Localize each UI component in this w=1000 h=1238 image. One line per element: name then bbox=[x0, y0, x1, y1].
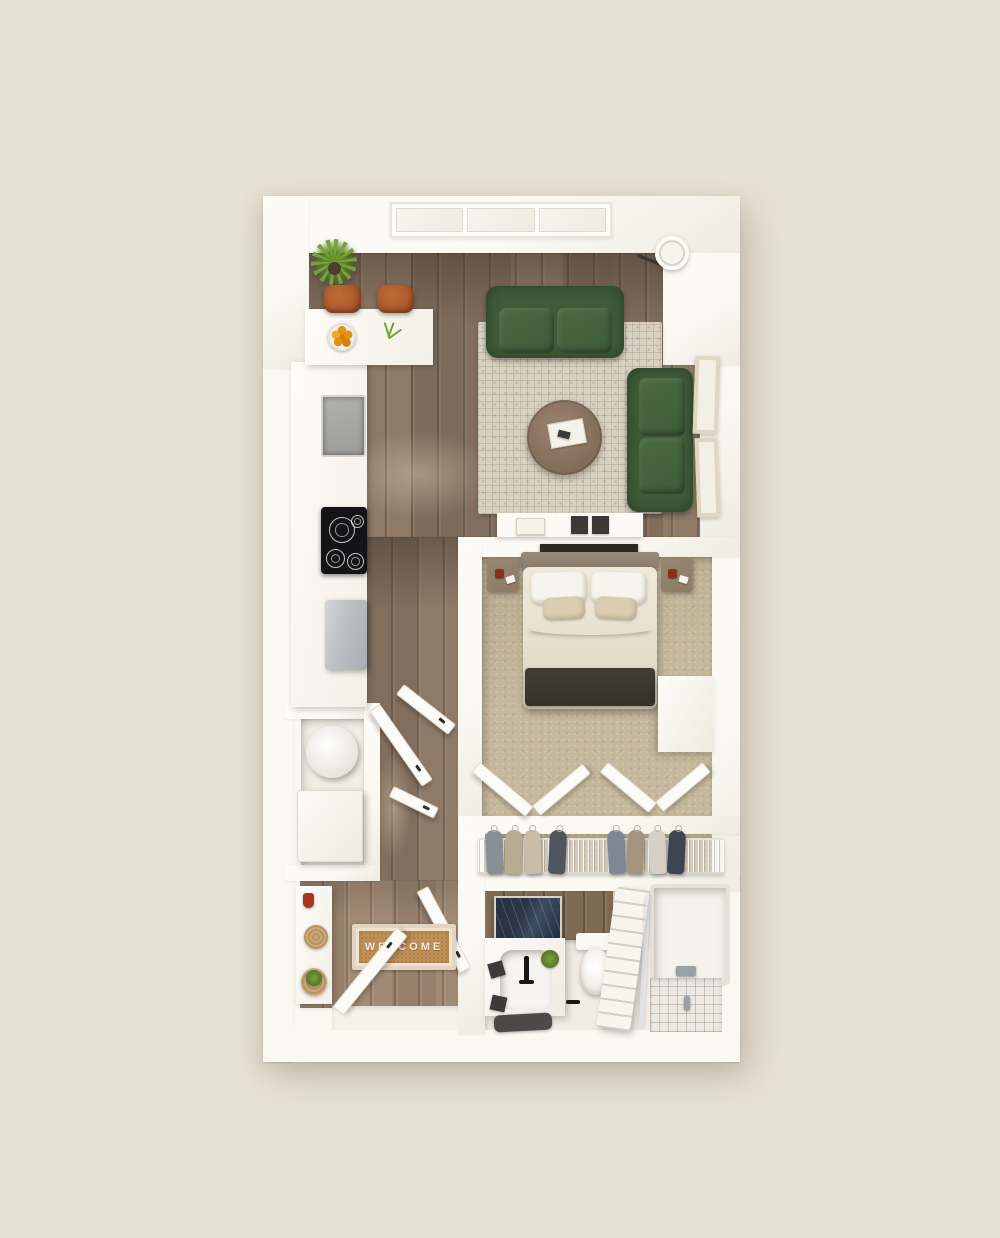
hanging-garment bbox=[523, 830, 542, 875]
toiletry-bottle bbox=[490, 995, 508, 1013]
notepad bbox=[505, 575, 516, 584]
basket-plant bbox=[306, 970, 322, 986]
toilet-paper-holder bbox=[566, 1000, 580, 1004]
door-handle bbox=[415, 765, 421, 772]
hanging-garment bbox=[607, 830, 626, 875]
bath-mat bbox=[494, 1012, 553, 1032]
hanging-garment bbox=[485, 830, 504, 875]
flower-vase bbox=[378, 320, 406, 348]
loveseat bbox=[627, 368, 693, 512]
floor-plan-canvas: WELCOME bbox=[0, 0, 1000, 1238]
door-handle bbox=[423, 805, 431, 811]
nightstand bbox=[487, 558, 518, 592]
alarm-clock bbox=[495, 569, 504, 578]
fruit-bowl bbox=[328, 323, 356, 351]
notepad bbox=[678, 575, 689, 584]
woven-basket bbox=[304, 925, 328, 949]
hanging-garment bbox=[667, 830, 686, 875]
window-pane bbox=[539, 208, 606, 232]
wall-utility-bottom bbox=[285, 865, 380, 881]
loveseat-cushion bbox=[639, 438, 685, 494]
burner-ring bbox=[351, 515, 364, 528]
vanity-mirror bbox=[494, 896, 562, 942]
alarm-clock bbox=[668, 569, 677, 578]
accent-pillow bbox=[542, 596, 585, 621]
vanity-plant bbox=[541, 950, 559, 968]
wall-bedroom-left bbox=[458, 537, 482, 837]
hanging-garment bbox=[648, 830, 667, 875]
nightstand bbox=[661, 558, 692, 592]
water-heater bbox=[306, 726, 358, 778]
hanging-garment bbox=[548, 830, 567, 875]
picture-frame bbox=[693, 356, 721, 435]
burner-ring bbox=[326, 549, 345, 568]
speaker bbox=[571, 516, 588, 534]
washer-dryer bbox=[297, 790, 363, 862]
bed-throw-blanket bbox=[525, 668, 655, 706]
sofa-cushion bbox=[557, 308, 612, 353]
cooktop bbox=[321, 507, 367, 574]
tub-faucet bbox=[676, 966, 696, 976]
console-tray bbox=[516, 518, 545, 535]
door-handle bbox=[438, 717, 445, 724]
sofa-cushion bbox=[499, 308, 554, 353]
hanging-garment bbox=[504, 830, 523, 875]
wall-bottom bbox=[263, 1030, 740, 1062]
sink-faucet-handle bbox=[519, 980, 534, 984]
bar-stool bbox=[377, 285, 414, 313]
dresser bbox=[658, 676, 714, 752]
kitchen-sink bbox=[321, 395, 366, 457]
door-handle bbox=[456, 951, 462, 959]
kitchen-island bbox=[305, 309, 433, 365]
shower-drain bbox=[684, 996, 690, 1010]
door-handle bbox=[386, 942, 393, 949]
living-room-window bbox=[390, 202, 612, 238]
loveseat-cushion bbox=[639, 378, 685, 436]
bar-stool bbox=[324, 285, 361, 313]
speaker bbox=[592, 516, 609, 534]
wall-utility-right bbox=[364, 703, 380, 881]
picture-frame bbox=[695, 438, 721, 518]
window-pane bbox=[467, 208, 534, 232]
hanging-garment bbox=[626, 830, 645, 875]
wall-closet-front bbox=[458, 816, 740, 834]
refrigerator bbox=[325, 600, 367, 670]
red-vase bbox=[303, 893, 314, 908]
window-pane bbox=[396, 208, 463, 232]
plant-pot bbox=[328, 262, 341, 275]
burner-ring bbox=[347, 553, 364, 570]
accent-pillow bbox=[594, 596, 637, 621]
floor-lamp bbox=[655, 236, 689, 270]
sofa bbox=[486, 286, 624, 358]
wall-left-upper bbox=[263, 196, 309, 368]
